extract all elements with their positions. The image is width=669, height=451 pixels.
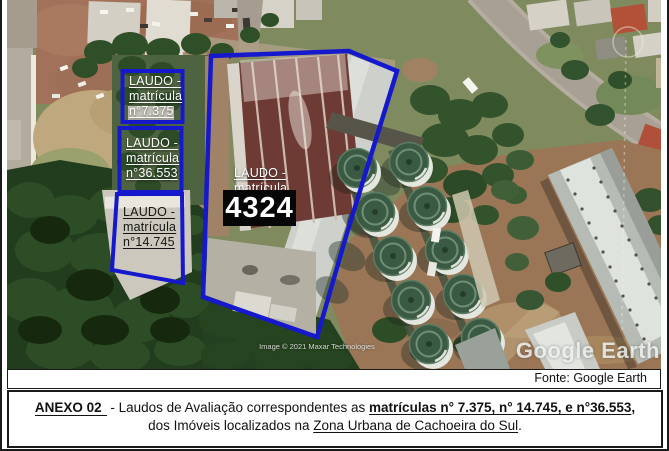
annotation-label-36553: LAUDO - matrícula n°36.553 (126, 136, 179, 181)
highlight-number-box: 4324 (223, 190, 296, 226)
left-buildings (7, 0, 37, 175)
imagery-copyright: Image © 2021 Maxar Technologies (232, 342, 402, 351)
anexo-text: - Laudos de Avaliação correspondentes as (107, 400, 369, 415)
google-earth-watermark: Google Earth (482, 338, 660, 364)
figure-source-caption: Fonte: Google Earth (7, 369, 661, 389)
anexo-label: ANEXO 02 (35, 400, 107, 416)
label-line: matrícula (126, 151, 179, 166)
anexo-caption-box: ANEXO 02 - Laudos de Avaliação correspon… (7, 390, 663, 448)
label-line: matrícula (129, 89, 182, 104)
anexo-line-1: ANEXO 02 - Laudos de Avaliação correspon… (9, 400, 661, 415)
anexo-line-2: dos Imóveis localizados na Zona Urbana d… (9, 418, 661, 433)
annotation-label-7375: LAUDO - matrícula n°7.375 (129, 74, 182, 119)
label-line: n°14.745 (123, 235, 176, 250)
anexo-matriculas: matrículas n° 7.375, n° 14.745, e n°36.5… (369, 400, 631, 415)
label-line: LAUDO - (129, 74, 182, 89)
label-line: matrícula (123, 220, 176, 235)
label-line: n°7.375 (129, 104, 182, 119)
caption-text: Fonte: Google Earth (534, 371, 647, 385)
document-page: LAUDO - matrícula n°7.375 LAUDO - matríc… (0, 0, 669, 451)
label-line: LAUDO - (234, 166, 287, 181)
label-line: LAUDO - (123, 205, 176, 220)
label-line: LAUDO - (126, 136, 179, 151)
satellite-image (7, 0, 661, 369)
annotation-label-14745: LAUDO - matrícula n°14.745 (123, 205, 176, 250)
anexo-zona-urbana: Zona Urbana de Cachoeira do Sul (313, 418, 518, 433)
satellite-figure (7, 0, 661, 369)
label-line: n°36.553 (126, 166, 179, 181)
highlight-number: 4324 (225, 190, 294, 226)
